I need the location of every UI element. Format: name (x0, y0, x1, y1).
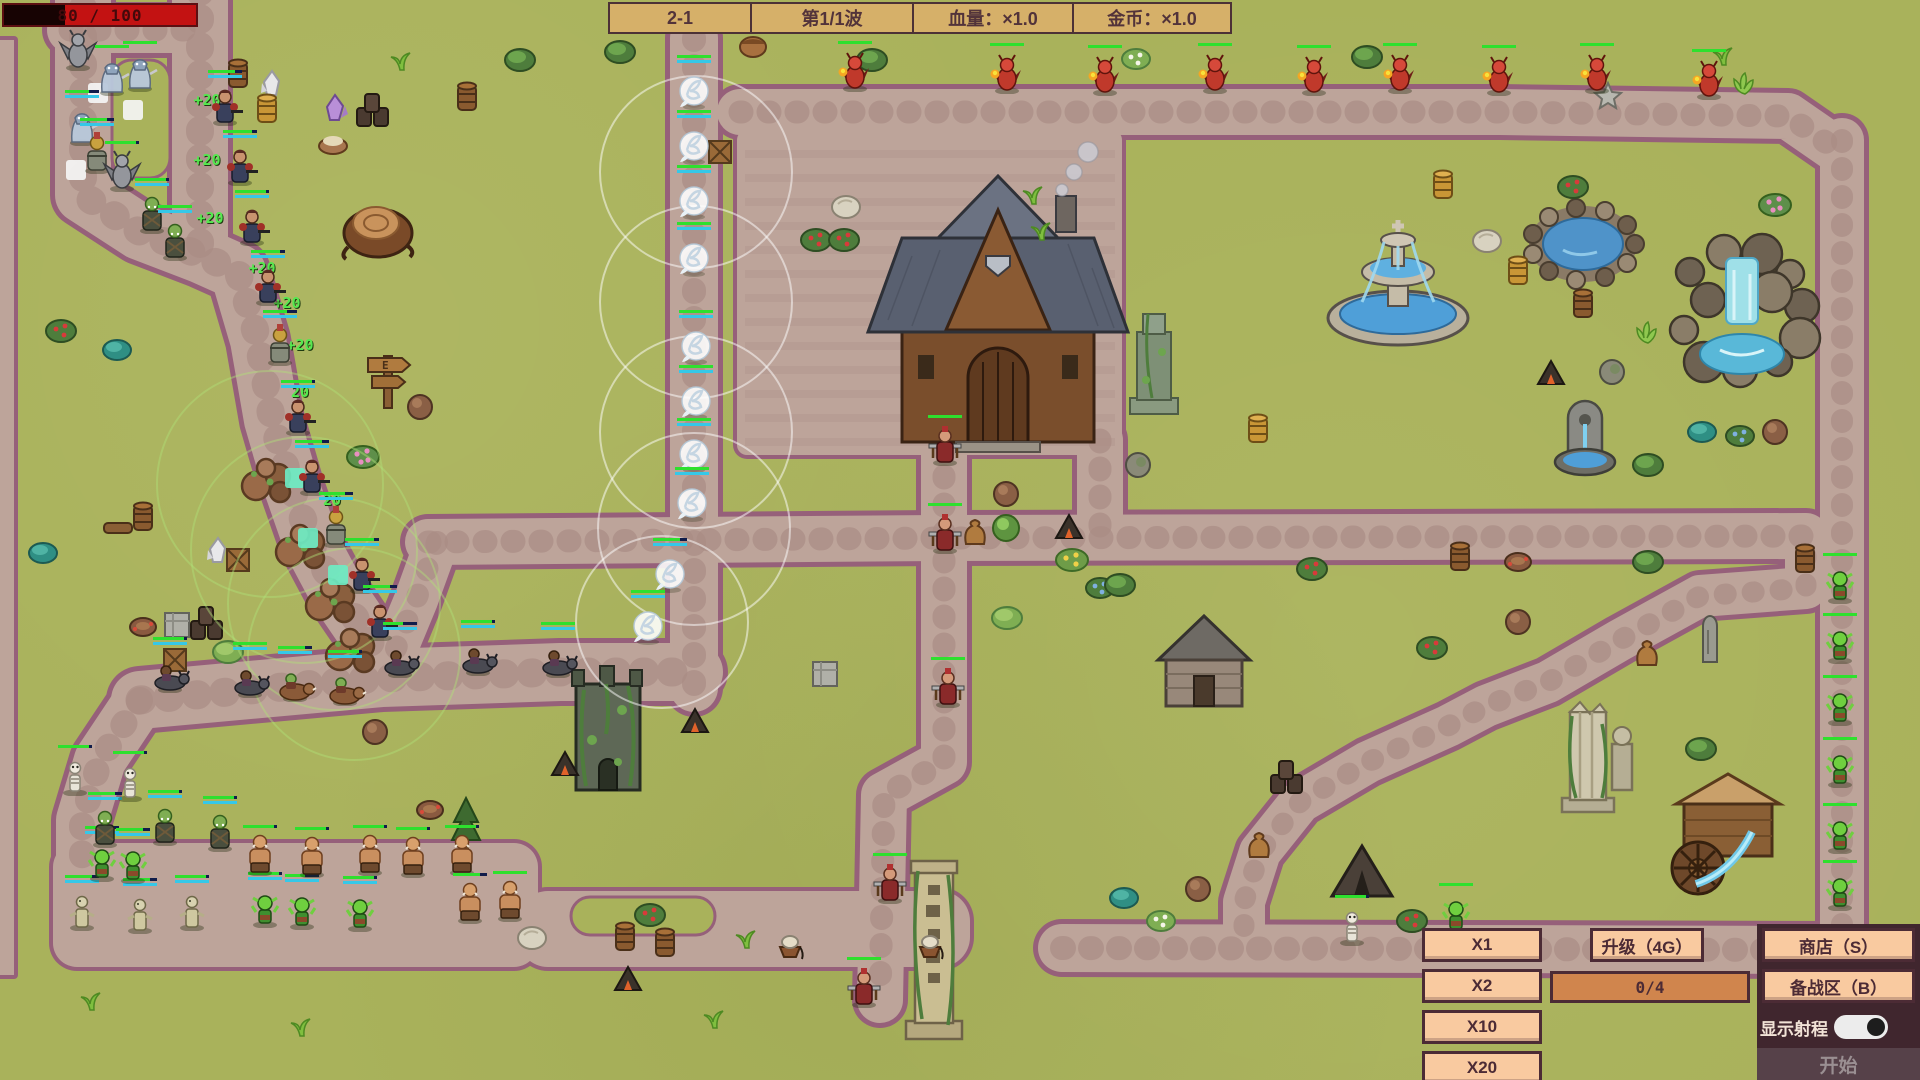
structure-stump (343, 207, 412, 259)
speed-x2-button[interactable]: X2 (1422, 969, 1542, 1003)
unit-goblin[interactable] (1818, 613, 1862, 668)
deco-daisy (1147, 911, 1175, 931)
show-range-toggle[interactable] (1834, 1015, 1888, 1039)
unit-orc[interactable] (198, 796, 242, 856)
structure-wallfountain (1555, 401, 1615, 475)
deco-stonecube (813, 662, 837, 686)
deco-flowerpink (1759, 194, 1791, 216)
structure-tower (572, 666, 642, 790)
unit-gunner[interactable] (203, 70, 247, 130)
speed-x1-button[interactable]: X1 (1422, 928, 1542, 962)
deco-bushlight (992, 607, 1022, 629)
deco-mossrock (1600, 360, 1624, 384)
structure-tent (1332, 846, 1392, 896)
deco-rockbrown (408, 395, 432, 419)
unit-goblin[interactable] (1818, 553, 1862, 608)
structure-mill (1672, 774, 1780, 894)
unit-wisp[interactable] (648, 538, 692, 598)
deco-barrelgold (1249, 415, 1267, 443)
deco-barrelgold (1509, 257, 1527, 285)
deco-barrel (1796, 545, 1814, 573)
start-button[interactable]: 开始 (1757, 1048, 1920, 1080)
deco-barrelpile (357, 94, 388, 126)
unit-goblin[interactable] (1818, 803, 1862, 858)
unit-orc[interactable] (153, 205, 197, 265)
unit-ogre[interactable] (440, 825, 484, 880)
deco-barrel (1574, 290, 1592, 318)
deco-log (104, 523, 132, 533)
deco-flowyellow (1056, 549, 1088, 571)
deco-sprout (81, 993, 100, 1010)
deco-camp (1538, 361, 1564, 384)
unit-wisp[interactable] (672, 55, 716, 115)
unit-wolfrider[interactable] (456, 620, 500, 680)
smoke-puff (1056, 184, 1068, 196)
deco-whiterock (1473, 230, 1501, 252)
structure-house (868, 176, 1128, 452)
show-range-label: 显示射程 (1760, 1015, 1828, 1040)
stun-effect-icon (123, 100, 143, 120)
deco-sack (1249, 833, 1269, 857)
unit-goblin[interactable] (338, 876, 382, 936)
unit-goblin[interactable] (1818, 737, 1862, 792)
deco-bush (1633, 454, 1663, 476)
game-map-canvas[interactable]: E +20+20+20+20+20+202020 (0, 0, 1920, 1080)
unit-ghost[interactable] (118, 41, 162, 96)
unit-goblin[interactable] (280, 874, 324, 934)
deco-berry (1297, 558, 1327, 580)
deco-rockbrown (1763, 420, 1787, 444)
unit-demon[interactable] (1687, 49, 1731, 104)
toggle-knob-icon (1867, 1018, 1885, 1036)
structure-shed (1158, 616, 1250, 706)
deco-bush (1686, 738, 1716, 760)
unit-berserker[interactable] (923, 415, 967, 470)
structure-fountain (1328, 220, 1468, 345)
deco-sprout (736, 931, 755, 948)
deco-pedestal (780, 936, 803, 959)
deco-acorn (740, 37, 766, 57)
unit-berserker[interactable] (868, 853, 912, 908)
hp-multiplier: 血量：×1.0 (914, 4, 1074, 32)
deco-bush (1105, 574, 1135, 596)
unit-boarrider[interactable] (273, 646, 317, 706)
unit-zombie[interactable] (170, 875, 214, 935)
unit-wisp[interactable] (670, 467, 714, 527)
deco-barrelpile (1271, 761, 1302, 793)
structure-spring (1670, 234, 1820, 387)
unit-wisp[interactable] (672, 110, 716, 170)
upgrade-button[interactable]: 升级（4G） (1590, 928, 1704, 962)
unit-skeleton[interactable] (1330, 895, 1374, 950)
unit-demon[interactable] (1292, 45, 1336, 100)
unit-demon[interactable] (1477, 45, 1521, 100)
unit-wolfrider[interactable] (148, 637, 192, 697)
deco-barrelgold (1434, 171, 1452, 199)
deco-leafplant (1734, 73, 1753, 94)
unit-wisp[interactable] (626, 590, 670, 650)
unit-ogre[interactable] (448, 873, 492, 928)
unit-skeleton[interactable] (53, 745, 97, 800)
unit-gunner[interactable] (290, 440, 334, 500)
unit-demon[interactable] (1575, 43, 1619, 98)
deco-bush (605, 41, 635, 63)
unit-gunner[interactable] (230, 190, 274, 250)
deco-sprout (1023, 187, 1042, 204)
level-indicator: 2-1 (610, 4, 752, 32)
unit-gunner[interactable] (276, 380, 320, 440)
deco-rockbrown (994, 482, 1018, 506)
unit-knight[interactable] (258, 310, 302, 370)
deco-camp (615, 967, 641, 990)
deco-teal (29, 543, 57, 563)
deco-sprout (704, 1011, 723, 1028)
unit-demon[interactable] (833, 41, 877, 96)
unit-berserker[interactable] (842, 957, 886, 1012)
unit-demon[interactable] (1378, 43, 1422, 98)
unit-gunner[interactable] (246, 250, 290, 310)
speed-x10-button[interactable]: X10 (1422, 1010, 1542, 1044)
deco-bush (1633, 551, 1663, 573)
deco-sack (965, 520, 985, 544)
health-value: 80 / 100 (4, 5, 196, 25)
deco-berry (801, 229, 831, 251)
gold-multiplier: 金币：×1.0 (1074, 4, 1230, 32)
deco-barrel (1451, 543, 1469, 571)
deco-berry (635, 904, 665, 926)
structure-statue (1130, 314, 1178, 414)
unit-ogre[interactable] (348, 825, 392, 880)
unit-goblin[interactable] (1818, 675, 1862, 730)
speed-x20-button[interactable]: X20 (1422, 1051, 1542, 1080)
deco-mushroom (417, 801, 443, 819)
deco-camp (682, 709, 708, 732)
deco-barrelpile (191, 607, 222, 639)
deco-rockbrown (1186, 877, 1210, 901)
deco-camp (1056, 515, 1082, 538)
unit-wisp[interactable] (674, 310, 718, 370)
deco-barrel (616, 923, 634, 951)
deco-flowerpink (347, 446, 379, 468)
deco-flowerblue (1726, 426, 1754, 446)
deco-stonecube (165, 613, 189, 637)
deco-mushroom (130, 618, 156, 636)
unit-ogre[interactable] (290, 827, 334, 882)
deco-barrel (458, 83, 476, 111)
unit-wolfrider[interactable] (228, 642, 272, 702)
smoke-puff (1078, 142, 1098, 162)
unit-wolfrider[interactable] (378, 622, 422, 682)
unit-wolfrider[interactable] (536, 622, 580, 682)
deco-rockbrown (363, 720, 387, 744)
unit-demon[interactable] (985, 43, 1029, 98)
deco-crystalwhite (261, 71, 279, 95)
deco-teal (1688, 422, 1716, 442)
deco-teal (103, 340, 131, 360)
deco-berry (1417, 637, 1447, 659)
structure-sign: E (368, 356, 410, 408)
svg-text:E: E (382, 359, 389, 372)
deco-rockbrown (1506, 610, 1530, 634)
shop-button[interactable]: 商店（S） (1762, 928, 1915, 962)
deco-barrel (134, 503, 152, 531)
upgrade-progress-bar: 0/4 (1550, 971, 1750, 1003)
unit-berserker[interactable] (926, 657, 970, 712)
deco-bushround (993, 515, 1019, 541)
unit-ogre[interactable] (488, 871, 532, 926)
deco-whiterock (832, 196, 860, 218)
unit-skeleton[interactable] (108, 751, 152, 806)
reserve-button[interactable]: 备战区（B） (1762, 969, 1915, 1003)
structure-pond (1524, 199, 1644, 289)
unit-ogre[interactable] (238, 825, 282, 880)
unit-wisp[interactable] (672, 222, 716, 282)
deco-whiterock (518, 927, 546, 949)
deco-barrel (656, 929, 674, 957)
unit-goblin[interactable] (1818, 860, 1862, 915)
deco-leafplant (1637, 322, 1656, 343)
deco-basket (319, 136, 347, 154)
deco-sprout (391, 53, 410, 70)
deco-crate (227, 549, 249, 571)
unit-wisp[interactable] (674, 365, 718, 425)
deco-sprout (291, 1019, 310, 1036)
deco-sack (1637, 641, 1657, 665)
deco-stonepillar (1703, 616, 1717, 662)
deco-mushroom (1505, 553, 1531, 571)
unit-boarrider[interactable] (323, 650, 367, 710)
unit-demon[interactable] (1083, 45, 1127, 100)
deco-camp (552, 752, 578, 775)
top-info-bar: 2-1 第1/1波 血量：×1.0 金币：×1.0 (608, 2, 1232, 34)
deco-bush (505, 49, 535, 71)
wave-indicator: 第1/1波 (752, 4, 914, 32)
deco-mossrock (1126, 453, 1150, 477)
structure-column (1562, 702, 1632, 812)
deco-teal (1110, 888, 1138, 908)
deco-berry (829, 229, 859, 251)
unit-demon[interactable] (1193, 43, 1237, 98)
deco-berry (46, 320, 76, 342)
smoke-puff (1066, 164, 1082, 180)
structure-rocks (242, 459, 290, 502)
deco-berry (1558, 176, 1588, 198)
deco-crystalpurple (327, 95, 348, 120)
unit-gunner[interactable] (218, 130, 262, 190)
deco-barrelgold (258, 95, 276, 123)
unit-berserker[interactable] (923, 503, 967, 558)
deco-crystalwhite (207, 538, 225, 562)
unit-wisp[interactable] (672, 165, 716, 225)
base-health-bar: 80 / 100 (2, 3, 198, 27)
unit-ogre[interactable] (391, 827, 435, 882)
